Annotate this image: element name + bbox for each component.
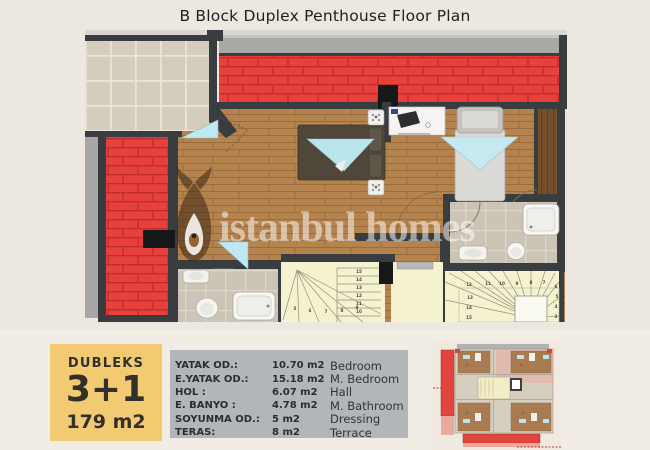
legend-row: E.YATAK OD.: 15.18 m2 M. Bedroom [170, 372, 408, 385]
svg-text:14: 14 [356, 277, 362, 282]
left-roof-strip [85, 131, 178, 322]
legend-row: E. BANYO : 4.78 m2 M. Bathroom [170, 399, 408, 412]
parapet-band [85, 30, 567, 35]
svg-text:5: 5 [556, 294, 559, 299]
roof-band [207, 30, 567, 109]
page-title: B Block Duplex Penthouse Floor Plan [0, 7, 650, 25]
svg-text:3: 3 [555, 314, 558, 319]
room-area: 6.07 m2 [272, 387, 330, 398]
svg-text:4: 4 [555, 304, 558, 309]
svg-text:13: 13 [467, 295, 473, 300]
svg-text:12: 12 [356, 293, 362, 298]
page: B Block Duplex Penthouse Floor Plan [0, 0, 650, 450]
nightstand [368, 180, 384, 195]
svg-text:13: 13 [356, 285, 362, 290]
svg-text:6: 6 [309, 308, 312, 313]
legend-row: HOL : 6.07 m2 Hall [170, 386, 408, 399]
stairs-inner: 15 14 13 12 11 10 5 6 7 8 9 [281, 262, 443, 322]
unit-area: 179 m2 [50, 411, 162, 433]
thumbnail-plan [433, 341, 561, 450]
svg-text:11: 11 [485, 281, 491, 286]
room-area: 8 m2 [272, 427, 330, 438]
building-overview-plan [433, 341, 561, 450]
stairs-communal: 12 11 10 9 8 7 13 14 15 6 5 4 3 [445, 271, 559, 322]
legend-row: SOYUNMA OD.: 5 m2 Dressing [170, 413, 408, 426]
svg-text:7: 7 [325, 309, 328, 314]
svg-text:12: 12 [466, 282, 472, 287]
info-box: DUBLEKS 3+1 179 m2 [50, 344, 162, 441]
chimney [143, 230, 175, 248]
floor-plan: 15 14 13 12 11 10 5 6 7 8 9 [85, 30, 567, 322]
room-name: Terrace [330, 426, 408, 440]
watermark-text: istanbul homes [219, 205, 475, 251]
room-area: 5 m2 [272, 414, 330, 425]
svg-text:9: 9 [356, 305, 359, 310]
room-area: 4.78 m2 [272, 400, 330, 411]
room-label: E. BANYO : [175, 400, 272, 411]
svg-text:10: 10 [499, 281, 505, 286]
room-name: Dressing [330, 412, 408, 426]
unit-layout: 3+1 [50, 372, 162, 409]
svg-text:6: 6 [555, 284, 558, 289]
room-label: HOL : [175, 387, 272, 398]
svg-text:14: 14 [466, 305, 472, 310]
svg-text:15: 15 [466, 315, 472, 320]
room-name: Hall [330, 385, 408, 399]
legend-row: YATAK OD.: 10.70 m2 Bedroom [170, 359, 408, 372]
room-area: 15.18 m2 [272, 374, 330, 385]
room-label: TERAS: [175, 427, 272, 438]
svg-text:5: 5 [294, 306, 297, 311]
svg-text:9: 9 [516, 281, 519, 286]
nightstand [368, 110, 384, 125]
legend: YATAK OD.: 10.70 m2 Bedroom E.YATAK OD.:… [170, 350, 408, 438]
room-area: 10.70 m2 [272, 360, 330, 371]
svg-text:7: 7 [543, 280, 546, 285]
svg-text:8: 8 [530, 280, 533, 285]
master-bed [298, 125, 385, 180]
legend-row: TERAS: 8 m2 Terrace [170, 426, 408, 439]
room-name: Bedroom [330, 359, 408, 373]
room-label: SOYUNMA OD.: [175, 414, 272, 425]
room-name: M. Bathroom [330, 399, 408, 413]
bathroom [178, 269, 278, 322]
svg-text:15: 15 [356, 269, 362, 274]
room-name: M. Bedroom [330, 372, 408, 386]
floor-plan-drawing: 15 14 13 12 11 10 5 6 7 8 9 [85, 30, 567, 322]
room-label: YATAK OD.: [175, 360, 272, 371]
room-label: E.YATAK OD.: [175, 374, 272, 385]
svg-text:8: 8 [341, 308, 344, 313]
desk [389, 107, 445, 135]
